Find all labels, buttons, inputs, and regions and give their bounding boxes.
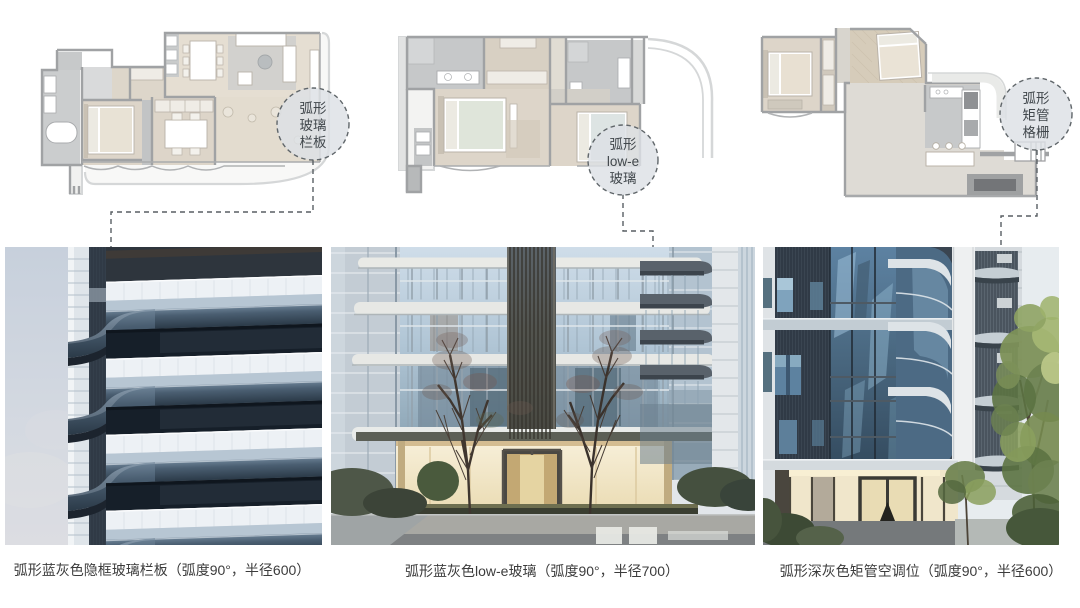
svg-text:矩管: 矩管 [1023,108,1050,123]
svg-text:弧形蓝灰色low-e玻璃（弧度90°，半径700）: 弧形蓝灰色low-e玻璃（弧度90°，半径700） [405,563,679,579]
svg-text:玻璃: 玻璃 [300,117,327,133]
svg-text:格栅: 格栅 [1023,125,1050,140]
svg-text:弧形蓝灰色隐框玻璃栏板（弧度90°，半径600）: 弧形蓝灰色隐框玻璃栏板（弧度90°，半径600） [14,562,311,578]
svg-text:弧形深灰色矩管空调位（弧度90°，半径600）: 弧形深灰色矩管空调位（弧度90°，半径600） [780,563,1063,579]
svg-text:弧形: 弧形 [1023,91,1051,106]
svg-text:弧形: 弧形 [610,137,638,152]
svg-text:玻璃: 玻璃 [610,170,637,186]
svg-text:low-e: low-e [607,154,639,169]
svg-text:栏板: 栏板 [300,135,327,150]
svg-text:弧形: 弧形 [300,101,327,116]
